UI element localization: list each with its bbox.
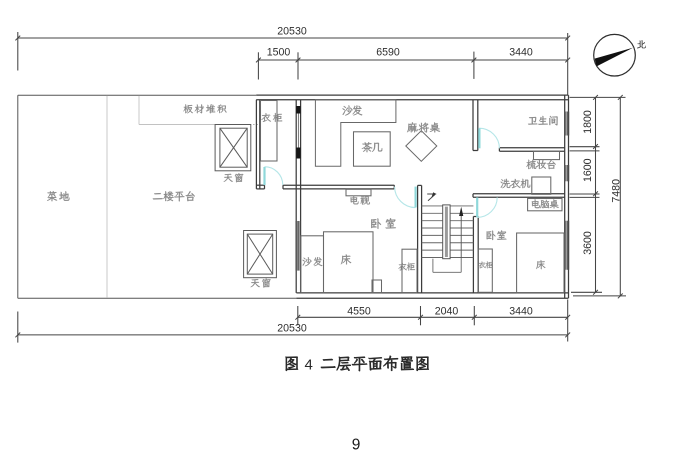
svg-text:4550: 4550 xyxy=(347,306,371,318)
svg-text:20530: 20530 xyxy=(277,25,307,37)
svg-text:1600: 1600 xyxy=(582,158,594,182)
svg-text:9: 9 xyxy=(352,437,361,454)
svg-text:1800: 1800 xyxy=(582,110,594,134)
svg-text:7480: 7480 xyxy=(610,179,622,203)
svg-text:4: 4 xyxy=(305,357,313,374)
svg-text:6590: 6590 xyxy=(376,47,400,59)
svg-text:2040: 2040 xyxy=(435,306,459,318)
svg-text:20530: 20530 xyxy=(277,323,307,335)
svg-text:3440: 3440 xyxy=(509,306,533,318)
svg-text:3600: 3600 xyxy=(582,231,594,255)
svg-text:1500: 1500 xyxy=(267,47,291,59)
svg-text:3440: 3440 xyxy=(509,47,533,59)
